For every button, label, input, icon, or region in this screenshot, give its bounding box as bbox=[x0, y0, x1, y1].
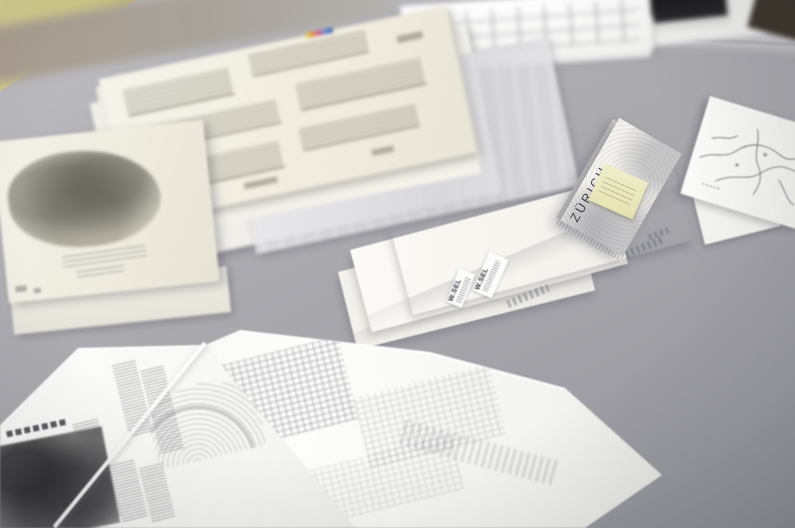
sticky-note-writing bbox=[599, 173, 638, 205]
page-edge-highlight bbox=[79, 345, 206, 349]
folded-plan-document bbox=[0, 325, 672, 528]
photo: W.SEL W.SEL W.SEL ZÜRICH bbox=[0, 0, 795, 528]
